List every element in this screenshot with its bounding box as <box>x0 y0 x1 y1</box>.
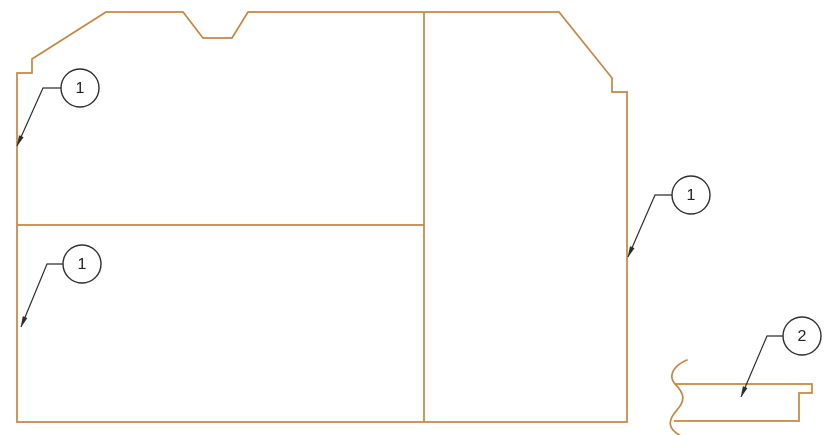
balloon-label: 1 <box>687 187 696 204</box>
balloon-label: 1 <box>76 80 85 97</box>
leader-line <box>741 336 783 397</box>
leader-line <box>628 195 672 257</box>
callout-balloon-1[interactable]: 1 <box>17 69 99 146</box>
balloon-label: 1 <box>78 256 87 273</box>
callout-balloon-2[interactable]: 1 <box>21 245 101 327</box>
leader-arrowhead <box>741 386 747 397</box>
break-line[interactable] <box>670 360 687 435</box>
callout-balloon-3[interactable]: 1 <box>628 176 710 257</box>
leader-arrowhead <box>628 246 634 257</box>
balloon-label: 2 <box>798 328 807 345</box>
callout-balloon-4[interactable]: 2 <box>741 317 821 397</box>
drawing-sheet: 1112 <box>0 0 830 435</box>
leader-arrowhead <box>17 136 23 146</box>
part-outline[interactable] <box>17 12 627 422</box>
leader-arrowhead <box>21 316 27 327</box>
cad-sheet: 1112 <box>0 0 830 435</box>
leader-line <box>21 264 63 327</box>
